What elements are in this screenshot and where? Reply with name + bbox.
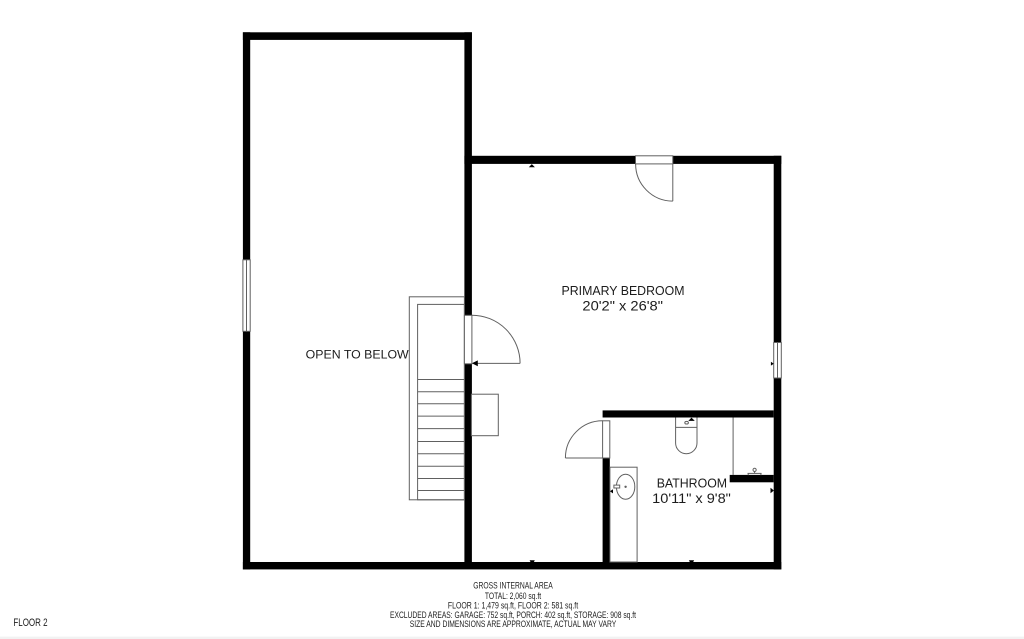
svg-text:20'2" x 26'8": 20'2" x 26'8" (582, 299, 663, 314)
svg-text:BATHROOM: BATHROOM (657, 475, 727, 490)
svg-text:PRIMARY BEDROOM: PRIMARY BEDROOM (562, 283, 685, 298)
svg-text:SIZE AND DIMENSIONS ARE APPROX: SIZE AND DIMENSIONS ARE APPROXIMATE, ACT… (410, 619, 617, 629)
svg-text:10'11" x 9'8": 10'11" x 9'8" (652, 491, 731, 506)
svg-text:GROSS INTERNAL AREA: GROSS INTERNAL AREA (473, 581, 553, 591)
svg-text:FLOOR 2: FLOOR 2 (13, 617, 47, 629)
svg-text:OPEN TO BELOW: OPEN TO BELOW (306, 347, 409, 361)
svg-text:TOTAL: 2,060 sq.ft: TOTAL: 2,060 sq.ft (485, 591, 542, 601)
